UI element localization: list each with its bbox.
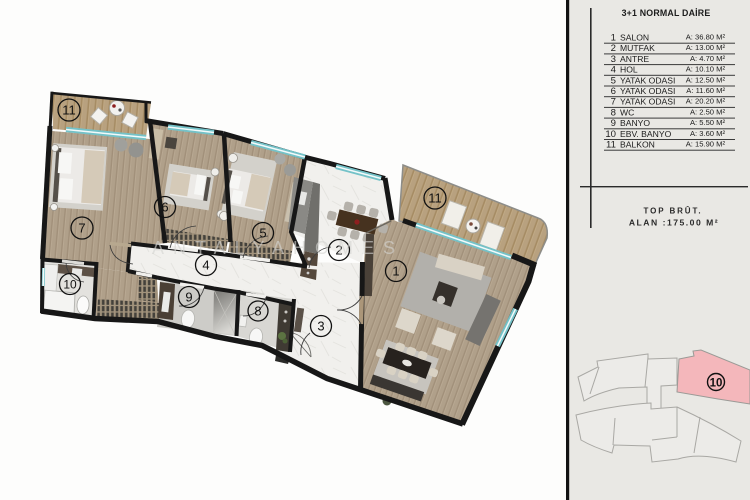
svg-text:2: 2 <box>611 43 616 54</box>
svg-text:TOP BRÛT.: TOP BRÛT. <box>643 207 702 216</box>
svg-text:6: 6 <box>611 86 616 97</box>
svg-text:A: 3.60 M²: A: 3.60 M² <box>690 129 725 138</box>
svg-text:11: 11 <box>62 103 76 118</box>
svg-text:A: 11.60 M²: A: 11.60 M² <box>686 86 725 95</box>
svg-text:10: 10 <box>710 378 723 390</box>
svg-text:A: 15.90 M²: A: 15.90 M² <box>686 140 726 149</box>
svg-text:A: 12.50 M²: A: 12.50 M² <box>686 75 726 84</box>
svg-text:A: 2.50 M²: A: 2.50 M² <box>690 107 725 116</box>
svg-text:A: 10.10 M²: A: 10.10 M² <box>686 65 726 74</box>
svg-text:YATAK ODASI: YATAK ODASI <box>620 86 675 96</box>
svg-text:A: 4.70 M²: A: 4.70 M² <box>690 54 725 63</box>
svg-text:MUTFAK: MUTFAK <box>620 43 655 53</box>
svg-text:9: 9 <box>611 118 616 129</box>
svg-text:10: 10 <box>605 129 616 140</box>
svg-text:7: 7 <box>611 97 616 108</box>
svg-text:1: 1 <box>611 33 616 44</box>
svg-text:3: 3 <box>611 54 616 65</box>
svg-text:BALKON: BALKON <box>620 140 655 150</box>
svg-text:YATAK ODASI: YATAK ODASI <box>620 97 675 107</box>
svg-text:4: 4 <box>611 65 617 76</box>
svg-text:A: 5.50 M²: A: 5.50 M² <box>690 118 725 127</box>
svg-text:SALON: SALON <box>620 33 649 43</box>
svg-text:6: 6 <box>161 200 168 215</box>
svg-text:HOL: HOL <box>620 65 638 75</box>
svg-text:7: 7 <box>78 221 85 236</box>
svg-text:WC: WC <box>620 107 634 117</box>
svg-text:A: 36.80 M²: A: 36.80 M² <box>686 33 726 42</box>
svg-text:8: 8 <box>254 304 261 319</box>
svg-text:11: 11 <box>606 140 616 151</box>
svg-text:A: 13.00 M²: A: 13.00 M² <box>686 43 726 52</box>
svg-text:9: 9 <box>185 290 192 305</box>
svg-text:10: 10 <box>63 277 77 291</box>
svg-text:11: 11 <box>428 191 442 206</box>
svg-text:EBV. BANYO: EBV. BANYO <box>620 129 672 139</box>
svg-text:ANTRE: ANTRE <box>620 54 649 64</box>
svg-text:ALAN :175.00 M²: ALAN :175.00 M² <box>629 218 719 228</box>
svg-text:3: 3 <box>317 319 324 334</box>
svg-text:1: 1 <box>392 264 399 279</box>
svg-text:YATAK ODASI: YATAK ODASI <box>620 75 675 85</box>
svg-text:3+1 NORMAL DAİRE: 3+1 NORMAL DAİRE <box>622 8 711 18</box>
svg-text:8: 8 <box>611 107 616 118</box>
svg-text:ANTALYAHOMES: ANTALYAHOMES <box>152 238 404 258</box>
svg-text:A: 20.20 M²: A: 20.20 M² <box>686 97 726 106</box>
svg-text:BANYO: BANYO <box>620 118 650 128</box>
svg-text:5: 5 <box>611 75 616 86</box>
svg-text:4: 4 <box>202 258 209 273</box>
